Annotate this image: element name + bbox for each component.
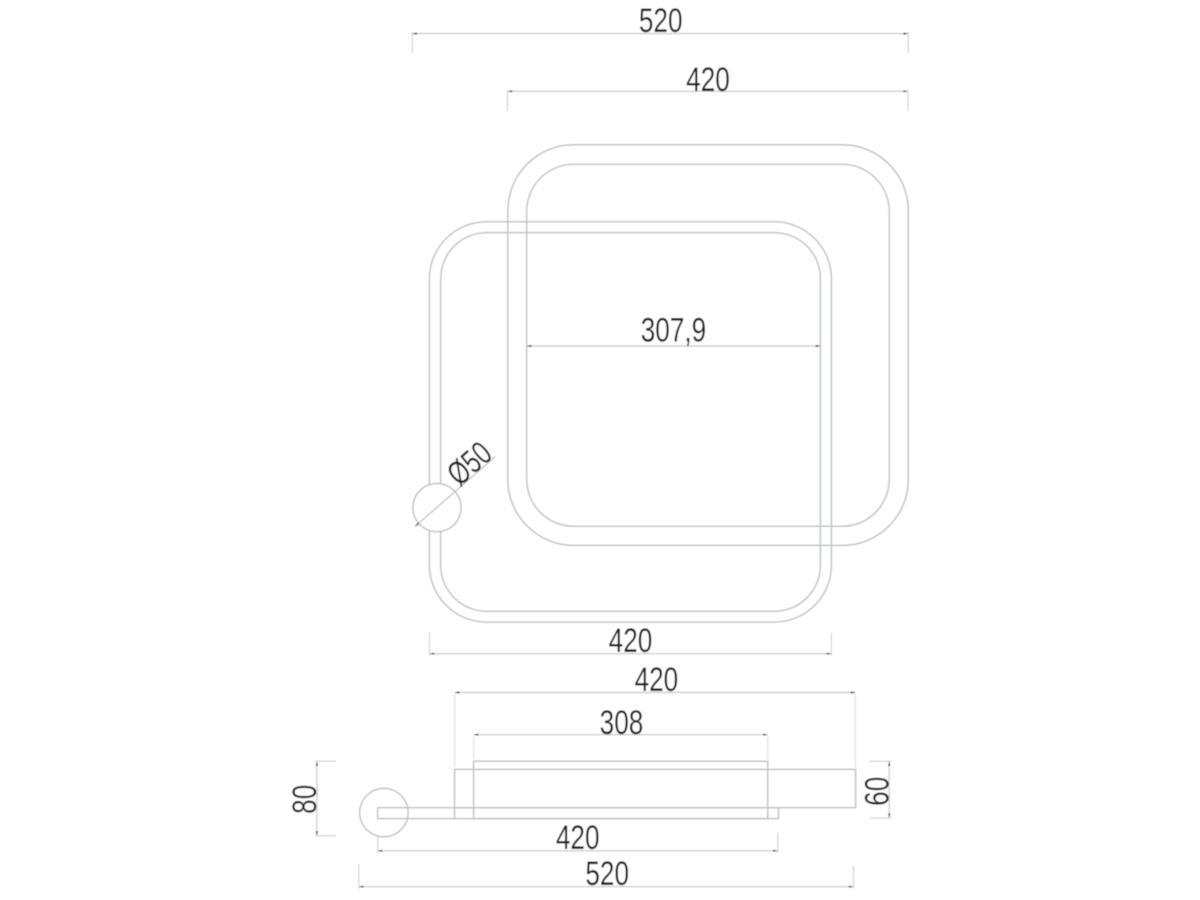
svg-text:520: 520 — [639, 3, 683, 40]
svg-text:307,9: 307,9 — [641, 312, 706, 349]
svg-text:420: 420 — [556, 820, 600, 857]
svg-text:80: 80 — [287, 785, 324, 814]
svg-text:308: 308 — [600, 705, 644, 742]
svg-text:420: 420 — [635, 662, 679, 699]
svg-text:520: 520 — [585, 856, 629, 893]
svg-text:420: 420 — [609, 623, 653, 660]
svg-text:60: 60 — [859, 777, 896, 806]
svg-text:420: 420 — [686, 62, 730, 99]
